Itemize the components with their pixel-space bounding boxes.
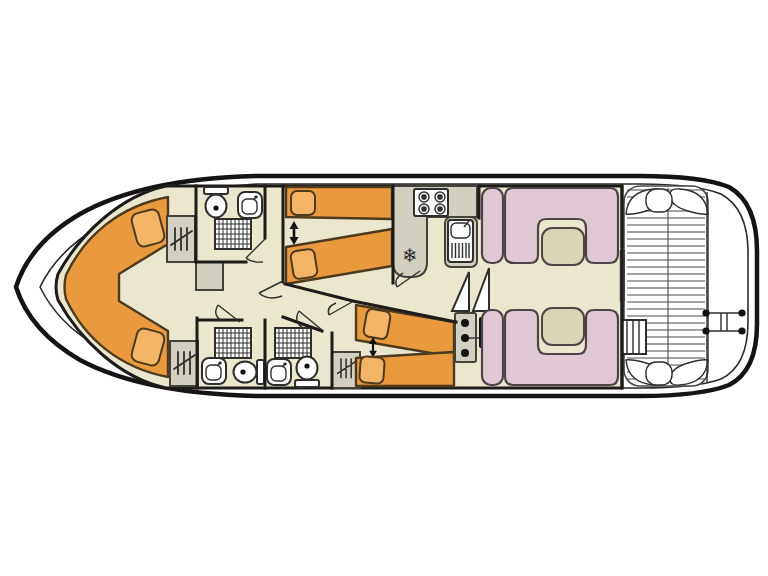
- helm-instrument-dot: [461, 319, 469, 327]
- dinette-table: [542, 228, 584, 265]
- dinette-side-seat: [482, 310, 503, 385]
- wardrobe: [170, 341, 198, 386]
- deck-corner-seat: [646, 362, 672, 385]
- dinette-side-seat: [482, 188, 503, 263]
- bed-pillow: [290, 248, 318, 279]
- aft-deck: [621, 186, 708, 386]
- bed-pillow: [291, 191, 315, 215]
- bed-pillow: [359, 356, 385, 384]
- toilet-icon: [204, 187, 228, 218]
- washbasin-icon: [202, 358, 226, 384]
- deck-plan-svg: Houseboat interior deck plan: [0, 0, 768, 576]
- helm-instrument-dot: [461, 334, 469, 342]
- aft-deck-boundary: [624, 186, 708, 386]
- washbasin-icon: [238, 192, 262, 218]
- toilet-icon: [295, 357, 319, 388]
- toilet-icon: [234, 360, 265, 384]
- fridge-snowflake-icon: ❄: [402, 244, 418, 266]
- wardrobe: [167, 216, 195, 262]
- shower-icon: [275, 328, 311, 358]
- cabinet: [196, 262, 223, 290]
- stove-icon: [414, 189, 448, 216]
- shower-icon: [215, 219, 251, 249]
- bed-pillow: [363, 308, 391, 340]
- galley-sink-icon: [448, 220, 473, 262]
- washbasin-icon: [267, 359, 291, 385]
- dinette-table: [542, 308, 584, 345]
- deck-steps: [621, 320, 646, 354]
- helm-instrument-dot: [461, 349, 469, 357]
- boat-floor-plan: Houseboat interior deck plan: [0, 0, 768, 576]
- shower-icon: [215, 328, 251, 358]
- deck-corner-seat: [646, 189, 672, 212]
